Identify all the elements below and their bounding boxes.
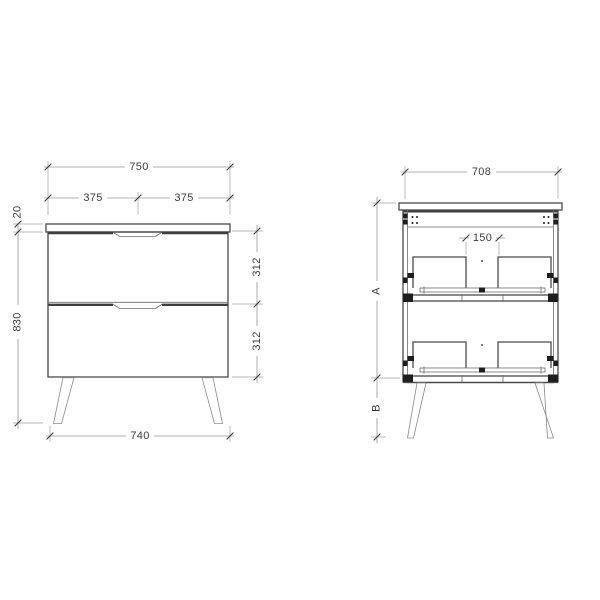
- runner-clip-right: [547, 356, 554, 361]
- center-mark: [481, 260, 483, 262]
- band-end-clip-right: [548, 375, 558, 383]
- front-right-leg: [202, 378, 223, 424]
- screw-dot: [416, 216, 418, 218]
- dim-label-center-gap: 150: [473, 232, 492, 244]
- screw-dot: [548, 222, 550, 224]
- section-right-leg: [535, 383, 554, 438]
- center-mark: [481, 344, 483, 346]
- lower-drawer-back-right: [498, 342, 551, 368]
- screw-dot: [412, 222, 414, 224]
- band-end-clip-left: [403, 375, 413, 383]
- runner-clip-left2: [403, 361, 408, 367]
- countertop: [46, 224, 230, 232]
- screw-dot: [412, 216, 414, 218]
- runner-clip-left2: [403, 278, 408, 284]
- top-rail-hardware: [403, 214, 558, 225]
- upper-drawer-back-right: [498, 257, 551, 288]
- front-dim-labels: 750 375 375 20 830 312 312 740: [12, 161, 264, 442]
- dim-label-top-drawer-height: 312: [251, 257, 263, 276]
- runner-clip-right2: [554, 278, 559, 284]
- dim-label-left-half: 375: [83, 192, 102, 204]
- upper-slide-band: [408, 295, 554, 301]
- dim-label-carcass-height: A: [371, 287, 383, 295]
- drawer1-handle-recess: [113, 232, 162, 236]
- runner-clip-right2: [554, 361, 559, 367]
- dim-label-top-thickness: 20: [12, 206, 24, 219]
- front-view: 750 375 375 20 830 312 312 740: [11, 161, 263, 442]
- dim-label-leg-height: B: [371, 404, 383, 412]
- screw-dot: [543, 216, 545, 218]
- rail-center-block: [479, 288, 485, 293]
- dim-label-base-width: 740: [130, 430, 149, 442]
- lower-drawer-section: [403, 342, 558, 383]
- screw-dot: [543, 222, 545, 224]
- drawer2-handle-recess: [113, 304, 162, 308]
- dim-label-section-width: 708: [472, 166, 491, 178]
- countertop-section: [399, 203, 562, 210]
- upper-drawer-back-left: [413, 257, 466, 288]
- screw-dot: [416, 222, 418, 224]
- rail-center-block: [479, 368, 485, 373]
- lower-drawer-back-left: [413, 342, 466, 368]
- dim-label-overall-width: 750: [129, 161, 148, 173]
- front-dimension-lines: [13, 161, 263, 442]
- section-view: 708 150 A B: [370, 166, 562, 443]
- runner-clip-right: [547, 273, 554, 278]
- runner-clip-left: [408, 356, 415, 361]
- lower-slide-band: [408, 376, 554, 383]
- front-dim-ticks: [15, 164, 261, 440]
- front-cabinet: [46, 224, 230, 424]
- band-end-clip-right: [548, 294, 558, 303]
- band-end-clip-left: [403, 294, 413, 303]
- dim-label-bottom-drawer-height: 312: [251, 331, 263, 350]
- upper-drawer-section: [403, 257, 558, 302]
- front-left-leg: [54, 378, 75, 424]
- dim-label-right-half: 375: [174, 192, 193, 204]
- screw-dot: [548, 216, 550, 218]
- section-left-leg: [408, 383, 427, 438]
- runner-clip-left: [408, 273, 415, 278]
- technical-drawing: 750 375 375 20 830 312 312 740: [0, 0, 600, 600]
- dim-label-overall-height: 830: [12, 312, 24, 331]
